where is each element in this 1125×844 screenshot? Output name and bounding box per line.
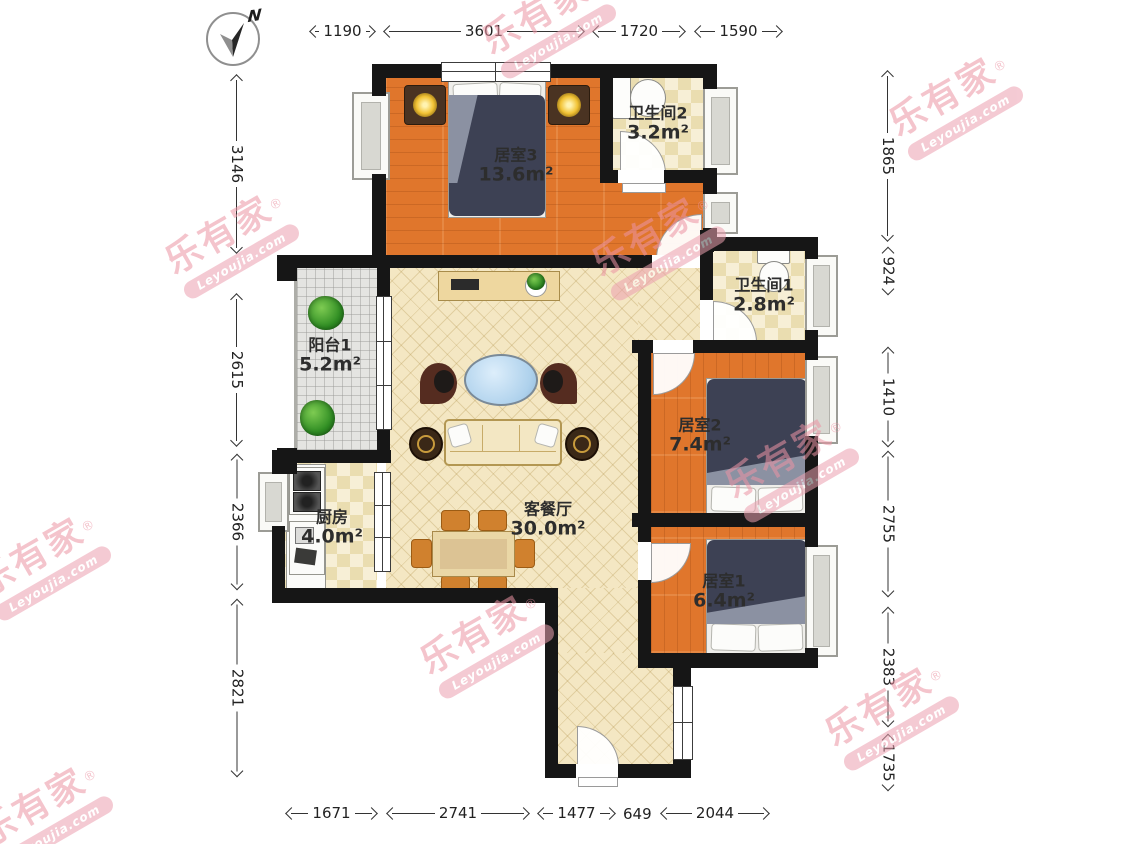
watermark: 乐有家® Leyoujia.com (0, 746, 116, 844)
wall-segment (372, 174, 386, 255)
bathroom2-bay-window (703, 87, 738, 175)
dimension-left-2: 2615 (227, 295, 247, 445)
dining-table (432, 531, 515, 577)
wall-segment (600, 64, 613, 183)
dimension-top-4: 1590 (696, 21, 781, 41)
room-label-bath1: 卫生间1 2.8m² (733, 276, 795, 315)
floor-plan-canvas: N (0, 0, 1125, 844)
sofa-pillow (447, 423, 473, 449)
dimension-bottom-1: 1671 (287, 803, 376, 823)
nightstand (548, 85, 590, 125)
wall-segment (805, 436, 818, 527)
tv-icon (451, 279, 479, 290)
bathroom2-door-leaf (622, 183, 666, 193)
wall-segment (805, 648, 818, 668)
sofa (444, 419, 562, 466)
dining-chair (514, 539, 535, 568)
plant-icon (527, 273, 545, 290)
wall-segment (703, 64, 717, 89)
tv-cabinet (438, 271, 560, 301)
dimension-right-2: 924 (878, 248, 898, 325)
stove-burner-icon (293, 471, 321, 491)
dimension-bottom-5: 2044 (662, 803, 768, 823)
wall-segment (372, 64, 386, 96)
wall-segment (805, 237, 818, 259)
wall-segment (700, 250, 713, 302)
watermark: 乐有家® Leyoujia.com (878, 36, 1027, 163)
dimension-right-3: 1410 (878, 348, 898, 445)
dimension-bottom-2: 2741 (388, 803, 528, 823)
armchair (420, 363, 457, 404)
armchair (540, 363, 577, 404)
balcony-outer-wall (294, 258, 297, 450)
armchair-cushion (434, 370, 454, 393)
wall-segment (386, 255, 652, 268)
wall-segment (805, 330, 818, 360)
kitchen-door-window (374, 472, 391, 572)
bedroom1-door-opening (638, 542, 651, 580)
dimension-right-1: 1865 (878, 72, 898, 240)
dimension-top-3: 1720 (594, 21, 684, 41)
lamp-icon (557, 93, 581, 117)
bathroom1-bay-window (805, 255, 838, 337)
plant-icon (300, 400, 335, 436)
nightstand (404, 85, 446, 125)
wall-segment (703, 228, 717, 240)
dimension-bottom-4: 649 (623, 805, 652, 823)
dimension-right-5: 2383 (878, 608, 898, 725)
wall-segment (272, 450, 285, 474)
room-label-bedroom1: 居室1 6.4m² (693, 572, 755, 611)
wall-segment (703, 168, 717, 194)
dimension-left-3: 2366 (227, 455, 247, 588)
wall-segment (638, 340, 651, 513)
balcony-sliding-door (376, 296, 392, 430)
dimension-left-1: 3146 (227, 76, 247, 252)
dining-chair (478, 510, 507, 531)
bathroom1-door-opening (700, 300, 713, 340)
room-label-living: 客餐厅 30.0m² (511, 500, 586, 539)
bedroom2-bay-window (805, 356, 838, 444)
dining-chair (411, 539, 432, 568)
room-label-bedroom2: 居室2 7.4m² (669, 416, 731, 455)
room-label-balcony: 阳台1 5.2m² (299, 336, 361, 375)
wall-segment (277, 255, 297, 281)
bedroom3-window (441, 62, 551, 82)
dimension-bottom-3: 1477 (539, 803, 614, 823)
wall-segment (703, 237, 818, 251)
pillow (758, 486, 804, 513)
wall-segment (377, 255, 390, 298)
dining-chair (441, 510, 470, 531)
room-label-kitchen: 厨房 4.0m² (301, 508, 363, 547)
corridor-window (673, 686, 693, 760)
side-table (409, 427, 443, 461)
room-label-bath2: 卫生间2 3.2m² (627, 104, 689, 143)
wall-segment (638, 580, 651, 668)
room-label-bedroom3: 居室3 13.6m² (479, 146, 554, 185)
entrance-door-opening (576, 764, 618, 778)
dimension-top-2: 3601 (385, 21, 583, 41)
entrance-door-leaf (578, 777, 618, 787)
side-table (565, 427, 599, 461)
dimension-right-4: 2755 (878, 452, 898, 595)
sofa-pillow (534, 423, 560, 449)
wall-segment (545, 764, 691, 778)
pillow (758, 623, 804, 652)
bedroom2-door-opening (653, 340, 693, 353)
bedroom3-door-opening (652, 255, 700, 268)
dimension-right-6: 1735 (878, 735, 898, 792)
entry-corridor-floor (558, 653, 673, 764)
kitchen-bay-window (258, 472, 289, 532)
cutting-board-icon (294, 548, 317, 566)
dimension-top-1: 1190 (311, 21, 374, 41)
pillow (711, 486, 757, 513)
wall-segment (545, 588, 558, 778)
wall-segment (377, 427, 390, 463)
wall-segment (272, 526, 285, 603)
hall-floor (558, 588, 638, 653)
lamp-icon (413, 93, 437, 117)
wall-segment (632, 513, 818, 527)
wall-segment (640, 653, 818, 668)
wall-segment (272, 588, 558, 603)
bedroom1-bay-window (805, 545, 838, 657)
wall-segment (673, 660, 691, 688)
watermark: 乐有家® Leyoujia.com (0, 496, 114, 623)
pillow (711, 623, 757, 652)
bathroom2-door-opening (618, 170, 664, 183)
plant-icon (308, 296, 344, 330)
coffee-table (464, 354, 538, 406)
bedroom3-bay-window (352, 92, 390, 180)
wall-segment (805, 527, 818, 547)
compass-north-label: N (247, 5, 262, 26)
armchair-cushion (543, 370, 563, 393)
dimension-left-4: 2821 (227, 600, 247, 775)
wall-segment (638, 513, 651, 542)
